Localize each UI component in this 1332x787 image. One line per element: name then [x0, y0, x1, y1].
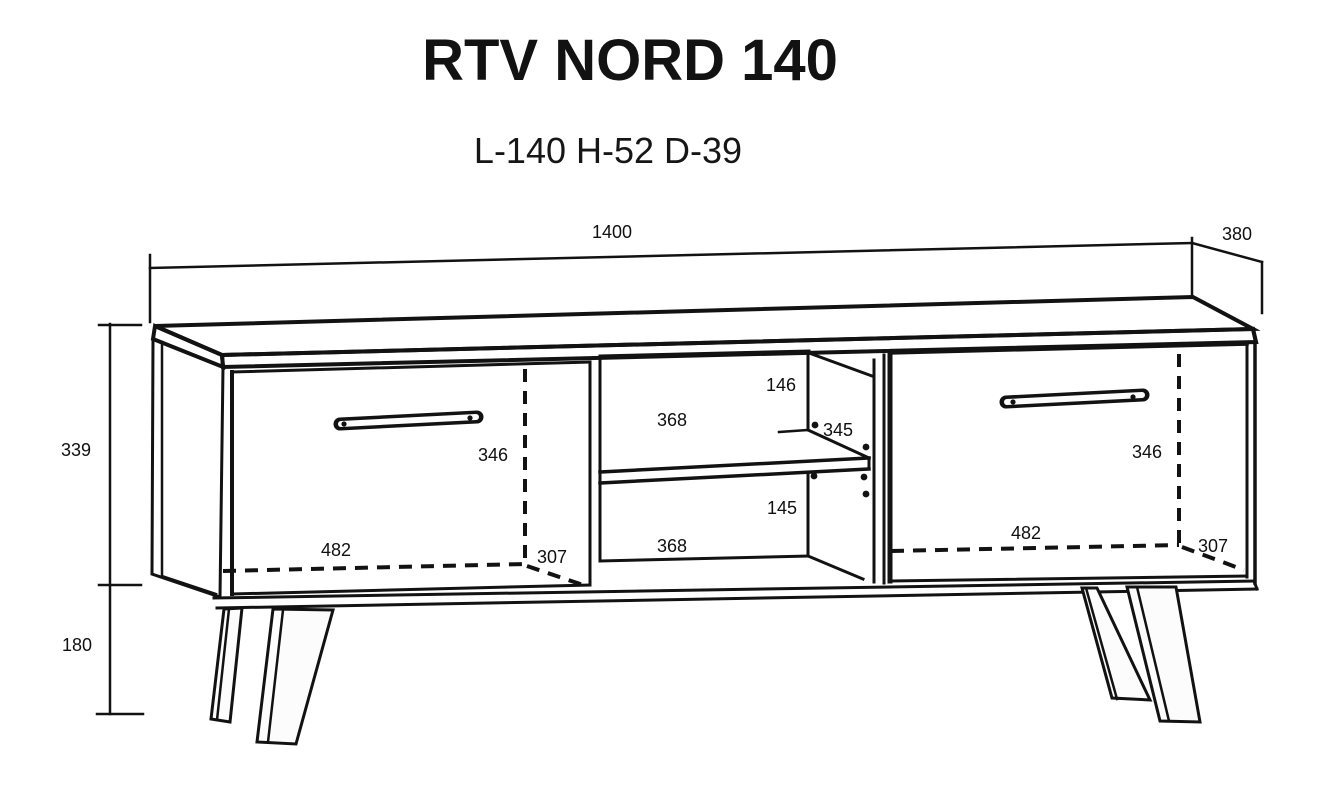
- left-door: 346 482 307: [223, 362, 590, 594]
- lower-opening-height-label: 145: [767, 498, 797, 518]
- drawing-header: RTV NORD 140 L-140 H-52 D-39: [422, 28, 838, 171]
- right-door-diagonal-label: 307: [1198, 536, 1228, 556]
- left-door-height-label: 346: [478, 445, 508, 465]
- middle-shelf-section: 146 368 345 145 368: [600, 351, 884, 583]
- back-left-leg: [211, 608, 242, 722]
- dimension-total-width: 1400: [150, 222, 1192, 322]
- upper-opening-height-label: 146: [766, 375, 796, 395]
- lower-opening-width-label: 368: [657, 536, 687, 556]
- page-title: RTV NORD 140: [422, 28, 838, 93]
- overall-dimensions-subtitle: L-140 H-52 D-39: [474, 130, 742, 171]
- furniture-technical-drawing: RTV NORD 140 L-140 H-52 D-39 1400 380 33…: [0, 0, 1332, 787]
- right-door-handle: [1006, 394, 1143, 404]
- shelf-depth-label: 345: [823, 420, 853, 440]
- top-panel: [153, 297, 1256, 367]
- left-door-dim-lines: [223, 369, 589, 587]
- left-door-diagonal-label: 307: [537, 547, 567, 567]
- front-right-leg: [1127, 587, 1200, 722]
- right-door-height-label: 346: [1132, 442, 1162, 462]
- body-height-label: 339: [61, 440, 91, 460]
- upper-opening-width-label: 368: [657, 410, 687, 430]
- legs: [211, 587, 1200, 744]
- right-door-width-label: 482: [1011, 523, 1041, 543]
- front-left-leg: [257, 609, 333, 744]
- total-depth-label: 380: [1222, 224, 1252, 244]
- right-door-dim-lines: [891, 354, 1244, 570]
- dimension-total-depth: 380: [1192, 224, 1262, 313]
- right-door: 346 482 307: [890, 344, 1247, 581]
- dimension-heights: 339 180: [61, 324, 143, 714]
- left-door-handle: [340, 415, 477, 426]
- left-door-width-label: 482: [321, 540, 351, 560]
- leg-height-label: 180: [62, 635, 92, 655]
- total-width-label: 1400: [592, 222, 632, 242]
